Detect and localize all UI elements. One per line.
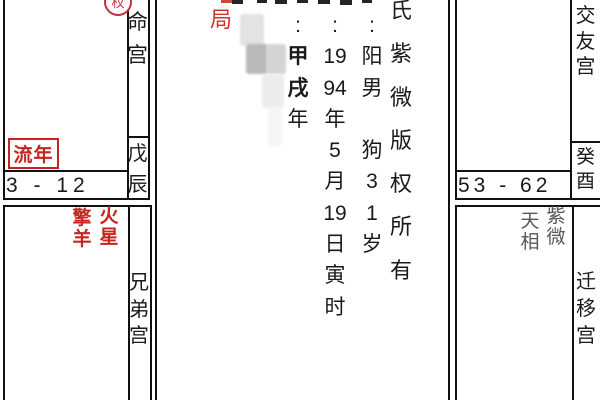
redacted-name-blur (246, 44, 268, 74)
year-pillar-column: :甲戌年 (283, 10, 313, 135)
redacted-name-blur (240, 14, 264, 46)
gender-age-column: :阳男 狗31岁 (357, 10, 387, 260)
redacted-name-blur (268, 106, 282, 146)
clipped-text-fragment (275, 0, 287, 4)
clipped-text-fragment (318, 0, 330, 4)
bureau-label: 局 (206, 8, 236, 32)
ziwei-chart: 权 命宫 戊辰 流年 3 - 12 擎羊 火星 兄弟宫 交友宫 癸酉 53 - … (0, 0, 600, 400)
birth-date-column: :1994年5月19日寅时 (320, 10, 350, 323)
copyright-watermark-column: 氏紫微版权所有 (385, 0, 417, 292)
center-info-panel: 局 :甲戌年 :1994年5月19日寅时 :阳男 狗31岁 氏紫微版权所有 (0, 0, 600, 400)
clipped-text-fragment (362, 0, 372, 3)
clipped-text-fragment (232, 0, 243, 4)
redacted-name-blur (262, 74, 284, 108)
clipped-text-fragment (297, 0, 308, 3)
clipped-text-fragment (257, 0, 267, 3)
clipped-text-fragment (340, 0, 352, 5)
